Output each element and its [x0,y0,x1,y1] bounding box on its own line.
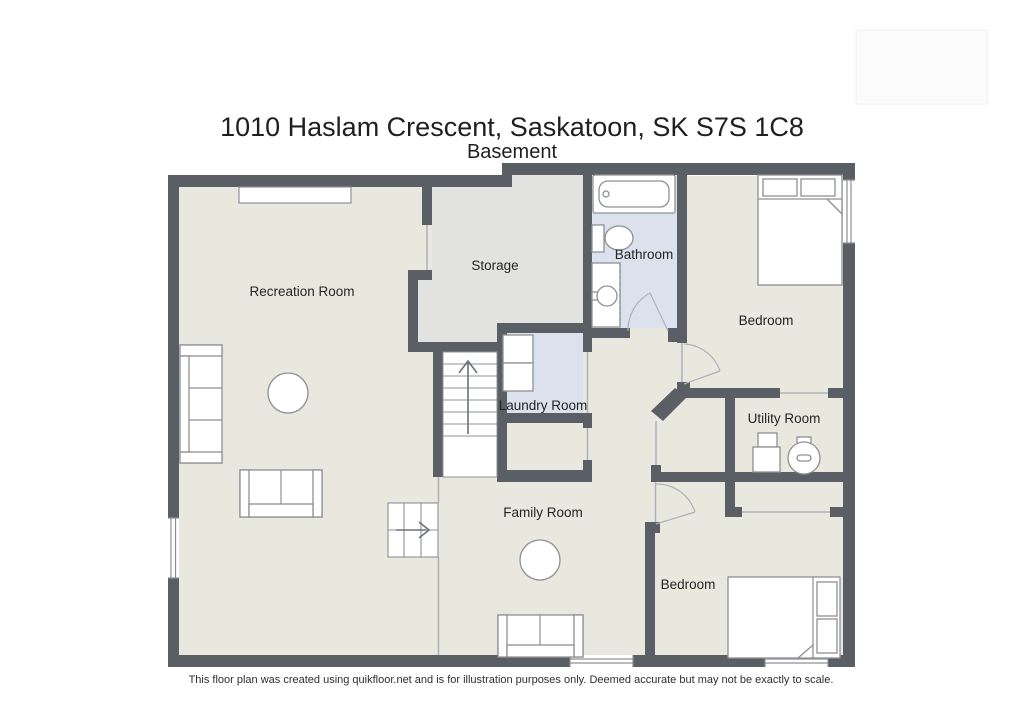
wall-segment [502,323,592,333]
bed-symbol-top [758,175,842,285]
staircase-main [443,352,497,477]
wall-segment [502,163,512,187]
wall-segment [168,578,179,666]
page: { "header": { "title": "1010 Haslam Cres… [0,0,1019,720]
page-subtitle: Basement [467,141,557,163]
wall-segment [583,163,592,333]
footer-disclaimer: This floor plan was created using quikfl… [189,674,834,686]
bathtub-symbol [593,175,675,213]
family-sofa-symbol [498,615,583,657]
watermark-box [856,30,988,104]
bed-symbol-bottom [728,577,840,658]
wall-segment [725,397,735,517]
room-label-family: Family Room [503,505,583,520]
wall-segment [433,352,443,477]
wall-segment [651,472,843,482]
window-recreation-top [239,187,351,203]
wall-segment [828,388,843,398]
staircase-small [388,503,438,557]
wall-segment [500,413,592,423]
round-table-symbol [268,373,308,413]
page-title: 1010 Haslam Crescent, Saskatoon, SK S7S … [220,112,804,142]
wall-segment [408,270,432,280]
washer-dryer-symbol [503,335,533,391]
wall-segment [583,460,592,482]
room-label-recreation: Recreation Room [249,284,354,299]
wall-segment [583,413,592,428]
wall-segment [422,187,432,225]
loveseat-symbol [240,470,322,517]
room-label-laundry: Laundry Room [499,398,588,413]
wall-segment [645,522,655,655]
wall-segment [408,342,507,352]
sofa-symbol [180,345,222,463]
wall-segment [677,163,687,343]
wall-segment [682,388,780,398]
wall-segment [408,280,418,347]
wall-segment [583,328,630,338]
window-left-wall [168,518,179,578]
room-label-bedroom-top: Bedroom [739,313,794,328]
wall-segment [843,243,855,667]
wall-segment [830,507,843,517]
room-label-utility: Utility Room [748,411,821,426]
room-label-bathroom: Bathroom [615,247,674,262]
family-table-symbol [520,540,560,580]
sink-vanity-symbol [592,263,620,327]
wall-segment [500,470,592,482]
room-label-storage: Storage [471,258,518,273]
floor-plan-canvas: 1010 Haslam Crescent, Saskatoon, SK S7S … [0,0,1019,720]
wall-segment [168,175,507,187]
wall-segment [168,175,179,518]
window-bedroom-right-wall [843,180,855,243]
wall-segment [725,507,742,517]
room-label-bedroom-bottom: Bedroom [661,577,716,592]
wall-segment [843,163,855,180]
